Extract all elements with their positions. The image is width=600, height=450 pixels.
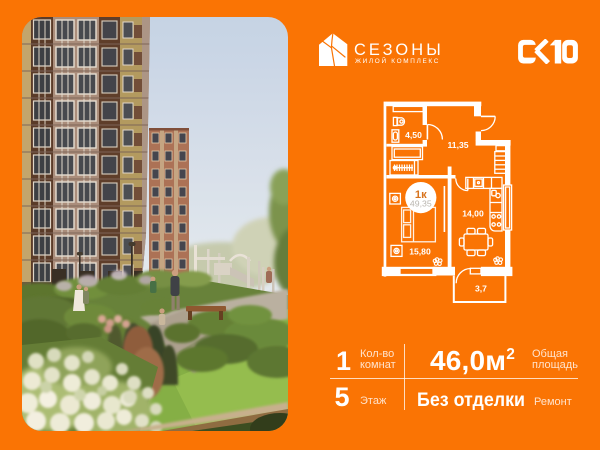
svg-text:4,50: 4,50 [405, 130, 422, 140]
svg-text:11,35: 11,35 [447, 140, 468, 150]
svg-text:49,35: 49,35 [410, 199, 432, 209]
svg-text:3,7: 3,7 [475, 284, 487, 294]
svg-text:14,00: 14,00 [462, 209, 484, 219]
svg-text:15,80: 15,80 [409, 246, 431, 256]
